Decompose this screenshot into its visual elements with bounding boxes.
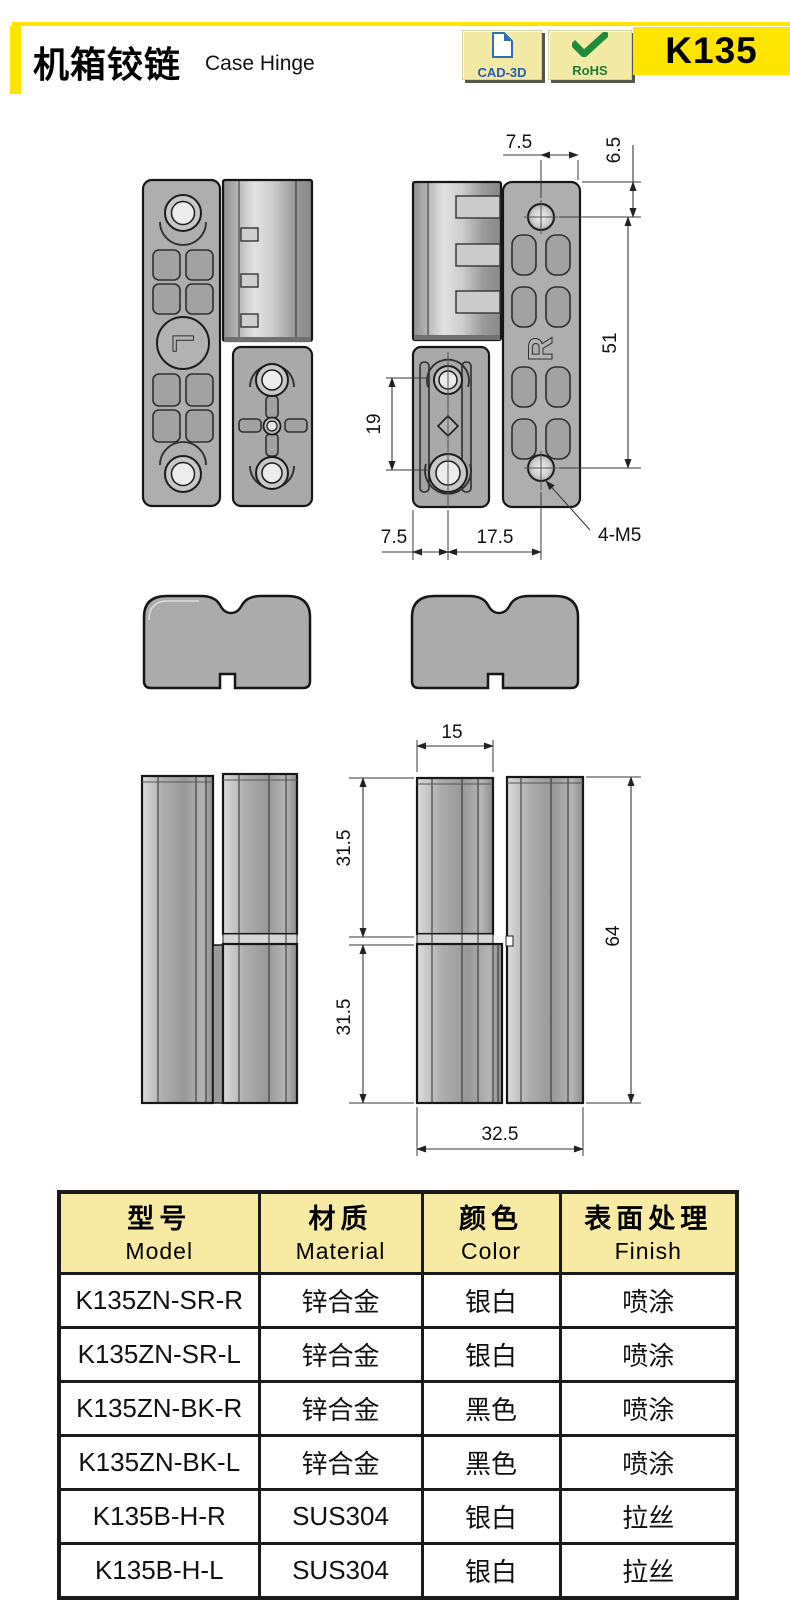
dimension-label: 7.5 bbox=[506, 132, 532, 153]
cell-finish: 喷涂 bbox=[560, 1274, 737, 1328]
cell-model: K135ZN-BK-R bbox=[59, 1382, 259, 1436]
cell-finish: 拉丝 bbox=[560, 1490, 737, 1544]
side-view-right bbox=[417, 777, 583, 1103]
table-row: K135ZN-SR-R 锌合金 银白 喷涂 bbox=[59, 1274, 737, 1328]
cell-model: K135ZN-BK-L bbox=[59, 1436, 259, 1490]
col-header-finish-zh: 表面处理 bbox=[562, 1201, 736, 1237]
cell-color: 银白 bbox=[422, 1544, 560, 1599]
table-row: K135ZN-SR-L 锌合金 银白 喷涂 bbox=[59, 1328, 737, 1382]
table-row: K135B-H-L SUS304 银白 拉丝 bbox=[59, 1544, 737, 1599]
col-header-color-zh: 颜色 bbox=[424, 1201, 559, 1237]
cell-finish: 拉丝 bbox=[560, 1544, 737, 1599]
dimension-label: 7.5 bbox=[381, 527, 407, 548]
cell-color: 银白 bbox=[422, 1328, 560, 1382]
col-header-material: 材质 Material bbox=[259, 1192, 422, 1274]
cell-finish: 喷涂 bbox=[560, 1436, 737, 1490]
cell-model: K135ZN-SR-L bbox=[59, 1328, 259, 1382]
dimension-label: 17.5 bbox=[477, 527, 514, 548]
cell-material: SUS304 bbox=[259, 1544, 422, 1599]
dimension-label: 64 bbox=[603, 925, 624, 947]
col-header-finish: 表面处理 Finish bbox=[560, 1192, 737, 1274]
col-header-color: 颜色 Color bbox=[422, 1192, 560, 1274]
table-row: K135ZN-BK-R 锌合金 黑色 喷涂 bbox=[59, 1382, 737, 1436]
cell-model: K135ZN-SR-R bbox=[59, 1274, 259, 1328]
cell-color: 黑色 bbox=[422, 1382, 560, 1436]
dimension-label: 31.5 bbox=[334, 999, 355, 1036]
cell-finish: 喷涂 bbox=[560, 1382, 737, 1436]
col-header-model: 型号 Model bbox=[59, 1192, 259, 1274]
spec-table: 型号 Model 材质 Material 颜色 Color 表面处理 Finis… bbox=[57, 1190, 739, 1600]
cell-material: SUS304 bbox=[259, 1490, 422, 1544]
table-row: K135B-H-R SUS304 银白 拉丝 bbox=[59, 1490, 737, 1544]
dimension-label: 15 bbox=[441, 722, 462, 743]
table-row: K135ZN-BK-L 锌合金 黑色 喷涂 bbox=[59, 1436, 737, 1490]
cell-color: 银白 bbox=[422, 1490, 560, 1544]
cell-color: 黑色 bbox=[422, 1436, 560, 1490]
cell-color: 银白 bbox=[422, 1274, 560, 1328]
section-profile-right bbox=[412, 596, 578, 688]
right-hand-marking: R bbox=[522, 337, 560, 362]
table-header-row: 型号 Model 材质 Material 颜色 Color 表面处理 Finis… bbox=[59, 1192, 737, 1274]
dimension-label: 32.5 bbox=[482, 1124, 519, 1145]
section-profile-left bbox=[144, 596, 310, 688]
dimension-label: 6.5 bbox=[604, 137, 625, 163]
col-header-color-en: Color bbox=[424, 1237, 559, 1265]
catalog-page: 机箱铰链 Case Hinge CAD-3D RoHS K135 bbox=[0, 0, 790, 1612]
cell-material: 锌合金 bbox=[259, 1274, 422, 1328]
dimension-label: 31.5 bbox=[334, 830, 355, 867]
left-hand-marking: L bbox=[166, 334, 199, 352]
thread-callout: 4-M5 bbox=[598, 525, 641, 546]
col-header-model-en: Model bbox=[61, 1237, 258, 1265]
cell-model: K135B-H-R bbox=[59, 1490, 259, 1544]
col-header-material-en: Material bbox=[261, 1237, 421, 1265]
col-header-finish-en: Finish bbox=[562, 1237, 736, 1265]
dimension-label: 51 bbox=[600, 332, 621, 353]
cell-material: 锌合金 bbox=[259, 1382, 422, 1436]
col-header-material-zh: 材质 bbox=[261, 1201, 421, 1237]
cell-material: 锌合金 bbox=[259, 1436, 422, 1490]
dimension-label: 19 bbox=[364, 413, 385, 434]
cell-model: K135B-H-L bbox=[59, 1544, 259, 1599]
front-view-right: R bbox=[413, 182, 580, 507]
col-header-model-zh: 型号 bbox=[61, 1201, 258, 1237]
cell-finish: 喷涂 bbox=[560, 1328, 737, 1382]
cell-material: 锌合金 bbox=[259, 1328, 422, 1382]
side-view-left bbox=[142, 774, 297, 1103]
front-view-left: L bbox=[143, 180, 312, 506]
